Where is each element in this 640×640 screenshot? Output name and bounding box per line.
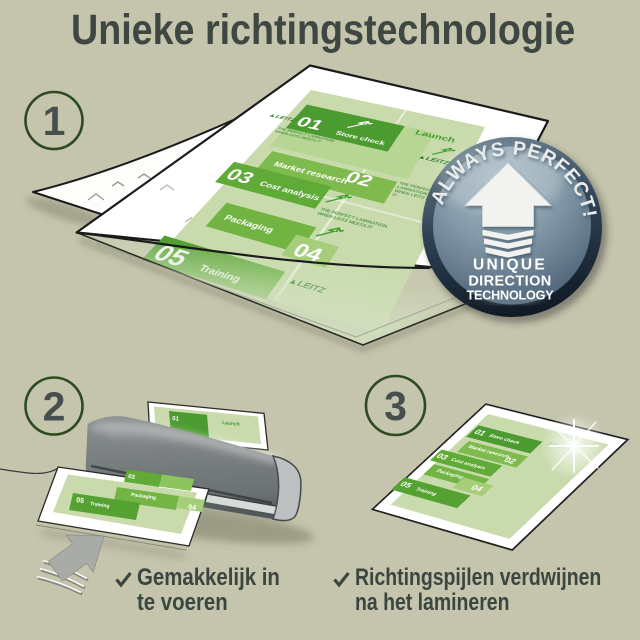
svg-text:04: 04 <box>188 504 197 512</box>
svg-text:01: 01 <box>172 416 180 423</box>
svg-text:05: 05 <box>76 497 85 505</box>
